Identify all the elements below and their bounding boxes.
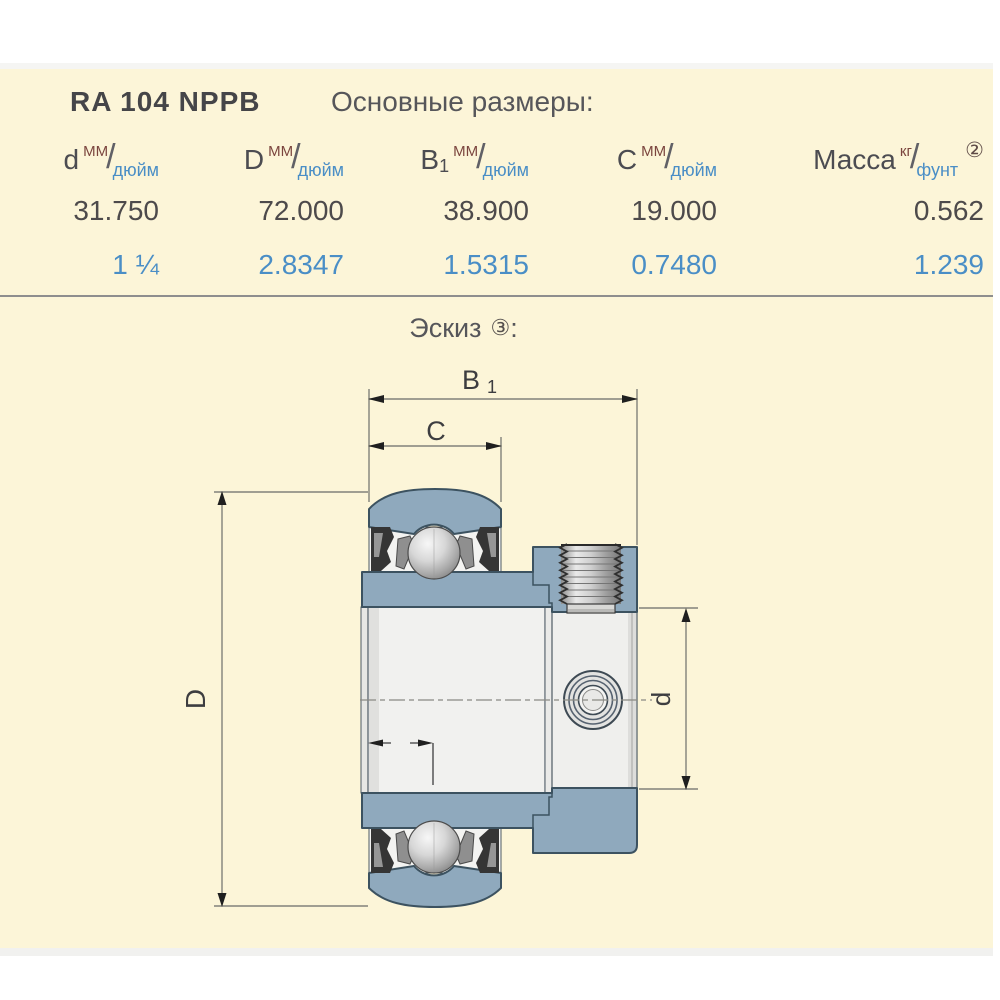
label-D: D — [180, 689, 211, 709]
bearing-cross-section-drawing: B 1 C D d — [0, 0, 1000, 1000]
label-B1: B — [462, 365, 480, 395]
svg-text:1: 1 — [487, 377, 497, 397]
label-d: d — [646, 692, 676, 706]
label-C: C — [426, 416, 446, 446]
set-screw — [560, 544, 622, 613]
dim-D-lines — [214, 492, 368, 906]
